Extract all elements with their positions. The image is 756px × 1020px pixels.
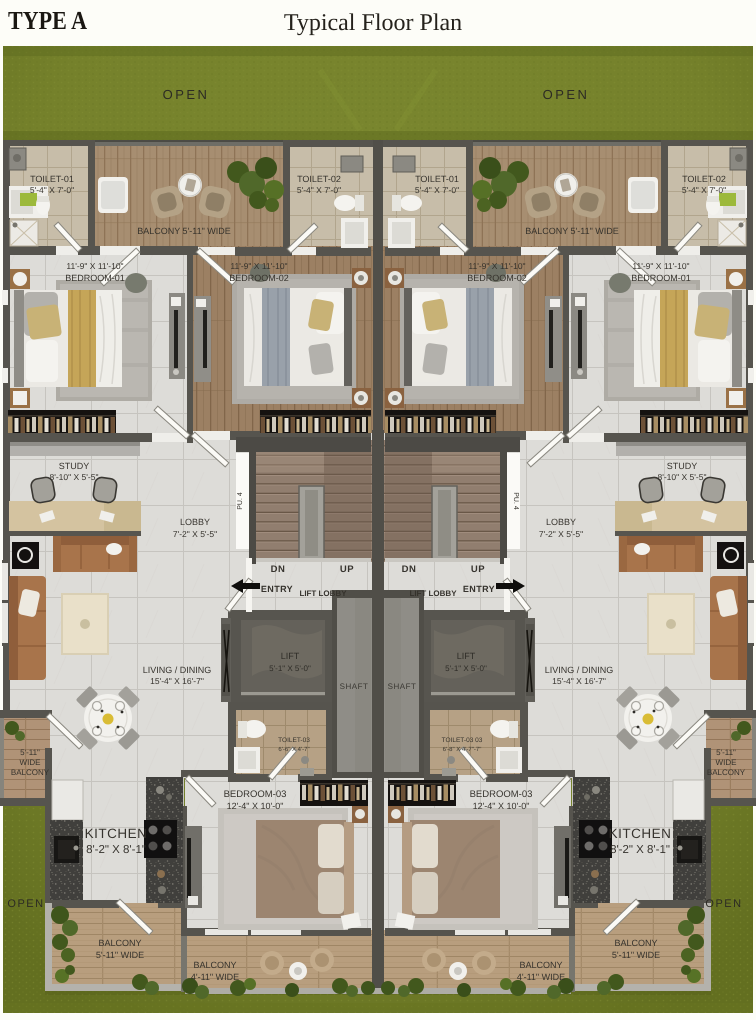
svg-text:6'-8" X 4'-7"-7": 6'-8" X 4'-7"-7" <box>443 746 482 753</box>
svg-text:BALCONY: BALCONY <box>11 768 50 777</box>
svg-text:BALCONY: BALCONY <box>519 960 562 970</box>
svg-text:TOILET-02: TOILET-02 <box>297 174 341 184</box>
svg-text:BALCONY: BALCONY <box>614 938 657 948</box>
svg-text:KITCHEN: KITCHEN <box>85 826 148 841</box>
svg-text:WIDE: WIDE <box>20 758 41 767</box>
svg-text:11'-9" X 11'-10": 11'-9" X 11'-10" <box>632 261 689 271</box>
svg-text:LIFT: LIFT <box>281 651 300 661</box>
svg-text:BEDROOM-01: BEDROOM-01 <box>65 273 125 283</box>
svg-text:SHAFT: SHAFT <box>340 682 369 691</box>
svg-text:LOBBY: LOBBY <box>546 517 576 527</box>
svg-text:5'-4" X 7'-0": 5'-4" X 7'-0" <box>30 185 74 195</box>
svg-text:DN: DN <box>402 564 417 575</box>
svg-text:BEDROOM-02: BEDROOM-02 <box>229 273 289 283</box>
svg-text:BALCONY: BALCONY <box>707 768 746 777</box>
svg-text:BALCONY 5'-11" WIDE: BALCONY 5'-11" WIDE <box>137 226 231 236</box>
svg-text:7'-2" X 5'-5": 7'-2" X 5'-5" <box>173 529 217 539</box>
svg-text:LIFT: LIFT <box>457 651 476 661</box>
svg-text:OPEN: OPEN <box>543 87 590 102</box>
svg-text:BALCONY: BALCONY <box>193 960 236 970</box>
svg-text:KITCHEN: KITCHEN <box>609 826 672 841</box>
svg-text:4'-11" WIDE: 4'-11" WIDE <box>191 972 239 982</box>
svg-text:Typical Floor Plan: Typical Floor Plan <box>284 10 462 36</box>
svg-text:5'-4" X 7'-0": 5'-4" X 7'-0" <box>682 185 726 195</box>
svg-text:DN: DN <box>271 564 286 575</box>
svg-text:LIFT LOBBY: LIFT LOBBY <box>409 589 457 598</box>
svg-text:5'-4" X 7'-0": 5'-4" X 7'-0" <box>415 185 459 195</box>
svg-text:LIVING / DINING: LIVING / DINING <box>143 665 212 675</box>
svg-text:STUDY: STUDY <box>59 461 90 471</box>
svg-text:5'-11": 5'-11" <box>716 748 736 757</box>
svg-text:OPEN: OPEN <box>7 898 44 910</box>
svg-text:15'-4" X 16'-7": 15'-4" X 16'-7" <box>150 676 204 686</box>
svg-text:8'-10" X 5'-5": 8'-10" X 5'-5" <box>50 472 99 482</box>
svg-text:UP: UP <box>471 564 485 575</box>
svg-text:12'-4" X 10'-0": 12'-4" X 10'-0" <box>227 801 284 811</box>
svg-text:OPEN: OPEN <box>163 87 210 102</box>
svg-text:OPEN: OPEN <box>705 898 742 910</box>
svg-text:TOILET-01: TOILET-01 <box>30 174 74 184</box>
svg-text:BEDROOM-01: BEDROOM-01 <box>631 273 691 283</box>
svg-text:BEDROOM-02: BEDROOM-02 <box>467 273 527 283</box>
svg-text:11'-9" X 11'-10": 11'-9" X 11'-10" <box>66 261 123 271</box>
svg-text:5'-4" X 7'-0": 5'-4" X 7'-0" <box>297 185 341 195</box>
svg-text:WIDE: WIDE <box>716 758 737 767</box>
svg-text:8'-10" X 5'-5": 8'-10" X 5'-5" <box>658 472 707 482</box>
svg-text:TYPE A: TYPE A <box>8 6 87 35</box>
svg-text:TOILET-03: TOILET-03 <box>278 737 310 744</box>
svg-text:STUDY: STUDY <box>667 461 698 471</box>
svg-text:5'-1" X 5'-0": 5'-1" X 5'-0" <box>269 664 311 673</box>
svg-text:UP: UP <box>340 564 354 575</box>
svg-text:7'-2" X 5'-5": 7'-2" X 5'-5" <box>539 529 583 539</box>
svg-text:11'-9" X 11'-10": 11'-9" X 11'-10" <box>468 261 525 271</box>
svg-text:11'-9" X 11'-10": 11'-9" X 11'-10" <box>230 261 287 271</box>
svg-text:SHAFT: SHAFT <box>388 682 417 691</box>
svg-text:BEDROOM-03: BEDROOM-03 <box>224 789 287 800</box>
svg-text:12'-4" X 10'-0": 12'-4" X 10'-0" <box>473 801 530 811</box>
svg-text:8'-2" X 8'-1": 8'-2" X 8'-1" <box>86 844 146 856</box>
svg-text:15'-4" X 16'-7": 15'-4" X 16'-7" <box>552 676 606 686</box>
svg-text:LIFT LOBBY: LIFT LOBBY <box>299 589 347 598</box>
svg-text:BALCONY: BALCONY <box>98 938 141 948</box>
svg-text:4'-11" WIDE: 4'-11" WIDE <box>517 972 565 982</box>
svg-text:LIVING / DINING: LIVING / DINING <box>545 665 614 675</box>
svg-text:BEDROOM-03: BEDROOM-03 <box>470 789 533 800</box>
svg-text:LOBBY: LOBBY <box>180 517 210 527</box>
svg-text:6'-6" X 4'-7": 6'-6" X 4'-7" <box>278 746 309 753</box>
svg-text:ENTRY: ENTRY <box>261 584 293 594</box>
svg-text:ENTRY: ENTRY <box>463 584 495 594</box>
svg-text:PU. 4: PU. 4 <box>237 492 244 510</box>
svg-text:5'-11" WIDE: 5'-11" WIDE <box>96 950 144 960</box>
svg-text:PU. 4: PU. 4 <box>512 492 519 510</box>
svg-text:5'-11" WIDE: 5'-11" WIDE <box>612 950 660 960</box>
svg-text:8'-2" X 8'-1": 8'-2" X 8'-1" <box>610 844 670 856</box>
svg-text:BALCONY 5'-11" WIDE: BALCONY 5'-11" WIDE <box>525 226 619 236</box>
svg-text:TOILET-01: TOILET-01 <box>415 174 459 184</box>
svg-text:5'-1" X 5'-0": 5'-1" X 5'-0" <box>445 664 487 673</box>
svg-text:5'-11": 5'-11" <box>20 748 40 757</box>
svg-text:TOILET-03 03: TOILET-03 03 <box>442 737 483 744</box>
svg-text:TOILET-02: TOILET-02 <box>682 174 726 184</box>
